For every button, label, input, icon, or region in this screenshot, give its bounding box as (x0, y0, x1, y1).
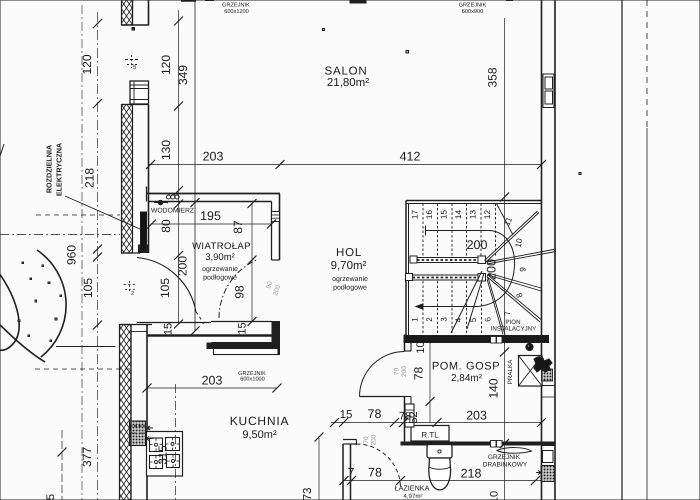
svg-text:ŁAZIENKA: ŁAZIENKA (395, 484, 430, 493)
svg-text:R.TL: R.TL (421, 431, 439, 440)
svg-text:200: 200 (401, 366, 408, 377)
svg-text:4,97m²: 4,97m² (403, 493, 422, 500)
svg-text:HOL: HOL (336, 247, 362, 259)
svg-text:3,90m²: 3,90m² (205, 252, 235, 263)
svg-text:GRZEJNIK: GRZEJNIK (459, 3, 487, 9)
svg-text:15: 15 (440, 210, 449, 220)
svg-text:349: 349 (176, 65, 190, 85)
svg-text:7: 7 (348, 466, 355, 480)
svg-text:9: 9 (519, 267, 528, 272)
svg-text:130: 130 (159, 140, 173, 160)
svg-text:PRALKA: PRALKA (507, 359, 514, 384)
svg-text:2,84m²: 2,84m² (451, 373, 483, 384)
svg-text:WIATROŁAP: WIATROŁAP (192, 241, 251, 252)
svg-text:1: 1 (411, 317, 420, 322)
svg-text:73: 73 (302, 488, 314, 500)
svg-text:KUCHNIA: KUCHNIA (230, 414, 290, 428)
svg-text:GRZEJNIK: GRZEJNIK (222, 3, 250, 9)
svg-text:5: 5 (469, 317, 478, 322)
svg-text:ogrzewanie: ogrzewanie (332, 275, 368, 283)
svg-text:15: 15 (237, 322, 249, 334)
svg-text:203: 203 (203, 150, 224, 164)
svg-text:5: 5 (45, 494, 57, 500)
svg-text:9,50m²: 9,50m² (242, 429, 277, 441)
svg-text:412: 412 (400, 150, 421, 164)
svg-text:ROZDZIELNIA: ROZDZIELNIA (45, 145, 54, 193)
svg-text:15: 15 (163, 323, 175, 335)
svg-text:14: 14 (454, 210, 463, 220)
svg-text:12: 12 (483, 210, 492, 220)
svg-text:2: 2 (131, 291, 134, 297)
svg-text:195: 195 (200, 209, 221, 223)
svg-text:200: 200 (485, 259, 499, 280)
svg-text:600x1200: 600x1200 (224, 9, 249, 15)
svg-text:9,70m²: 9,70m² (331, 260, 367, 272)
svg-text:600x900: 600x900 (462, 9, 483, 15)
svg-text:140: 140 (487, 378, 501, 398)
svg-text:600x1000: 600x1000 (240, 377, 265, 383)
svg-text:17: 17 (411, 210, 420, 220)
svg-text:78: 78 (368, 407, 382, 421)
svg-text:INSTALACYJNY: INSTALACYJNY (491, 326, 537, 333)
svg-text:2: 2 (425, 317, 434, 322)
svg-text:52: 52 (408, 411, 420, 423)
svg-text:DRABINKOWY: DRABINKOWY (483, 462, 528, 469)
svg-text:WODOMIERZ: WODOMIERZ (151, 208, 194, 215)
svg-text:ogrzewanie: ogrzewanie (202, 265, 238, 273)
svg-text:105: 105 (81, 278, 95, 298)
svg-text:203: 203 (202, 374, 223, 388)
svg-text:218: 218 (83, 168, 97, 188)
svg-text:3: 3 (440, 317, 449, 322)
svg-text:200: 200 (467, 238, 488, 252)
svg-text:87: 87 (231, 220, 245, 234)
svg-text:70: 70 (363, 436, 370, 444)
svg-text:218: 218 (461, 467, 482, 481)
svg-text:15: 15 (340, 409, 353, 421)
svg-text:80: 80 (159, 219, 173, 233)
svg-text:358: 358 (486, 67, 500, 87)
svg-text:105: 105 (158, 278, 172, 298)
svg-text:120: 120 (159, 55, 173, 75)
svg-text:10: 10 (489, 491, 501, 500)
svg-text:70: 70 (394, 368, 401, 376)
svg-text:POM. GOSP: POM. GOSP (432, 361, 500, 373)
svg-text:78: 78 (412, 367, 426, 381)
svg-text:203: 203 (466, 409, 487, 423)
svg-text:podłogowe: podłogowe (333, 284, 367, 292)
svg-text:SALON: SALON (325, 66, 368, 78)
svg-text:315: 315 (158, 445, 170, 464)
svg-text:78: 78 (368, 466, 382, 480)
svg-text:21,80m²: 21,80m² (327, 77, 369, 89)
svg-text:960: 960 (65, 245, 79, 265)
svg-text:200: 200 (371, 434, 378, 445)
svg-text:13: 13 (469, 210, 478, 220)
svg-text:200: 200 (176, 256, 190, 276)
svg-text:16: 16 (425, 210, 434, 220)
svg-text:10: 10 (415, 341, 427, 353)
svg-text:ELEKTRYCZNA: ELEKTRYCZNA (55, 143, 64, 196)
svg-text:98: 98 (233, 285, 247, 299)
